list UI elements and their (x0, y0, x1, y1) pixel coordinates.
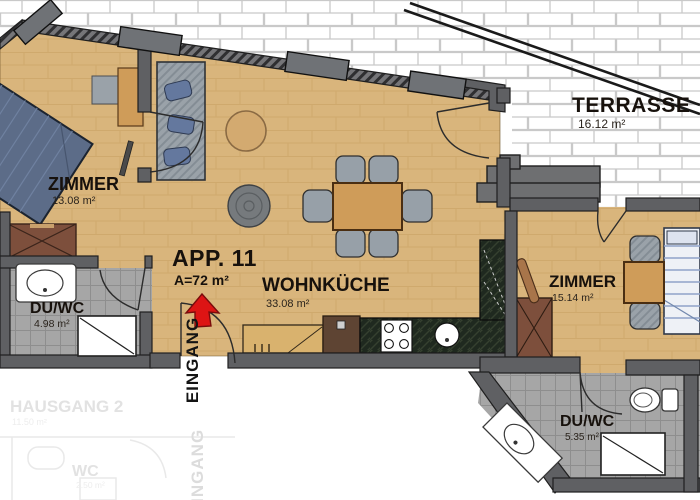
round-rug-icon (228, 185, 270, 227)
room-area-duwc-right: 5.35 m² (565, 432, 600, 443)
room-label-wohnkueche: WOHNKÜCHE (262, 275, 390, 296)
bed2-icon (664, 228, 700, 334)
wardrobe-icon (8, 224, 76, 258)
apartment-title: APP. 11 (172, 245, 257, 271)
room-label-zimmer-left: ZIMMER (48, 174, 119, 194)
room-label-zimmer-right: ZIMMER (549, 272, 616, 291)
kitchen-sink-icon (435, 323, 459, 347)
room-label-wc: WC (72, 463, 99, 480)
rug-icon (92, 76, 119, 104)
room-area-zimmer-right: 15.14 m² (552, 292, 594, 304)
room-label-terrasse: TERRASSE (572, 94, 690, 117)
room-area-wc: 2.50 m² (76, 480, 105, 490)
room-label-duwc-left: DU/WC (30, 300, 85, 317)
room-area-wohnkueche: 33.08 m² (266, 298, 310, 310)
round-table-icon (226, 111, 266, 151)
wardrobe2-icon (516, 298, 552, 358)
entrance-label-faded: EINGANG (188, 429, 207, 500)
room-label-hausgang: HAUSGANG 2 (10, 397, 123, 416)
entrance-label: EINGANG (183, 317, 202, 403)
sink-icon (16, 264, 76, 302)
shower-icon (78, 316, 136, 356)
dining-table-icon (333, 183, 402, 230)
room-area-zimmer-left: 13.08 m² (52, 195, 96, 207)
apartment-area: A=72 m² (174, 272, 229, 288)
toilet-icon (630, 388, 678, 412)
shower2-icon (601, 433, 665, 475)
room-area-duwc-left: 4.98 m² (34, 318, 70, 330)
small-table-set-icon (624, 236, 664, 329)
room-label-duwc-right: DU/WC (560, 413, 615, 430)
floorplan-page: ZIMMER 13.08 m² APP. 11 A=72 m² WOHNKÜCH… (0, 0, 700, 500)
room-area-hausgang: 11.50 m² (12, 417, 47, 427)
room-area-terrasse: 16.12 m² (578, 117, 625, 131)
floorplan-drawing: ZIMMER 13.08 m² APP. 11 A=72 m² WOHNKÜCH… (0, 0, 700, 500)
stove-icon (381, 320, 412, 352)
